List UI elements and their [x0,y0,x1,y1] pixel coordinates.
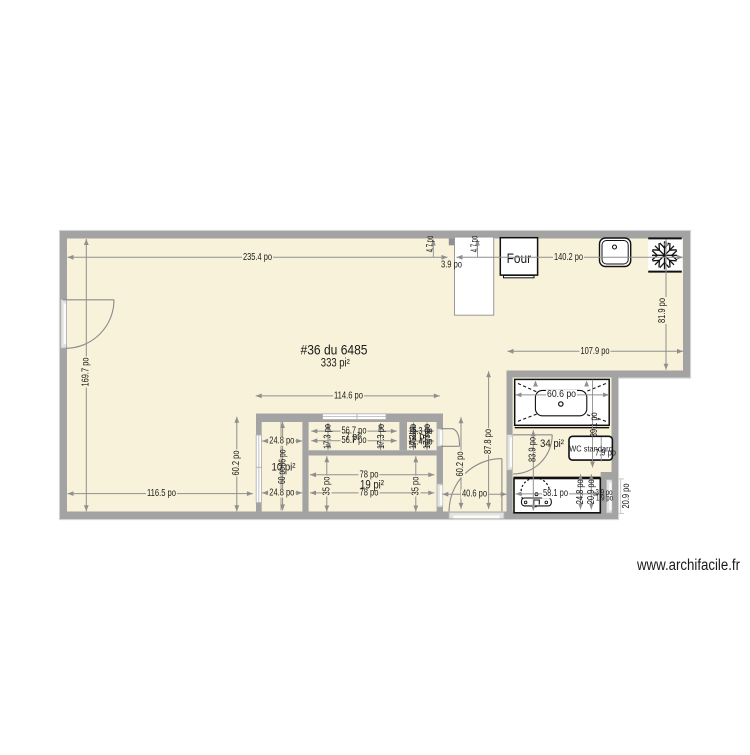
svg-text:58.1 po: 58.1 po [543,488,568,499]
svg-text:4.7 po: 4.7 po [469,236,480,253]
svg-text:60.2 po: 60.2 po [455,451,466,476]
svg-text:#36 du 6485: #36 du 6485 [301,342,368,357]
svg-text:1.9 po: 1.9 po [596,493,613,503]
svg-text:87.8 po: 87.8 po [483,429,494,454]
svg-text:89.1 po: 89.1 po [589,412,600,437]
svg-text:114.6 po: 114.6 po [334,390,363,401]
svg-text:20.9 po: 20.9 po [621,483,632,508]
svg-text:17.3 po: 17.3 po [322,424,333,449]
svg-text:140.2 po: 140.2 po [554,252,583,263]
svg-text:60.2 po: 60.2 po [231,450,242,475]
svg-text:19 pi²: 19 pi² [360,477,384,491]
svg-text:3.9 po: 3.9 po [441,259,462,270]
svg-text:Four: Four [507,251,532,266]
svg-text:235.4 po: 235.4 po [243,252,272,263]
svg-text:24.8 po: 24.8 po [269,487,294,498]
svg-text:24.8 po: 24.8 po [575,479,586,504]
svg-text:35 po: 35 po [321,476,332,495]
svg-text:4.7 po: 4.7 po [425,236,436,253]
svg-text:60.6 po: 60.6 po [547,389,576,400]
svg-text:34 pi²: 34 pi² [540,438,564,450]
svg-text:17.3 po: 17.3 po [376,424,387,449]
svg-text:116.5 po: 116.5 po [147,488,176,499]
svg-text:2 pi²: 2 pi² [412,431,431,442]
svg-text:7.9 po: 7.9 po [595,448,616,459]
svg-text:10 pi²: 10 pi² [272,461,296,473]
svg-text:169.7 po: 169.7 po [80,357,91,386]
svg-text:107.9 po: 107.9 po [581,346,610,357]
svg-text:83.9 po: 83.9 po [528,437,539,462]
svg-text:40.6 po: 40.6 po [462,489,487,500]
svg-text:333 pi²: 333 pi² [321,358,350,370]
svg-text:www.archifacile.fr: www.archifacile.fr [636,557,740,574]
svg-text:35 po: 35 po [410,476,421,495]
svg-text:81.9 po: 81.9 po [657,298,668,323]
svg-text:7 pi²: 7 pi² [345,431,362,443]
svg-text:24.8 po: 24.8 po [269,436,294,447]
